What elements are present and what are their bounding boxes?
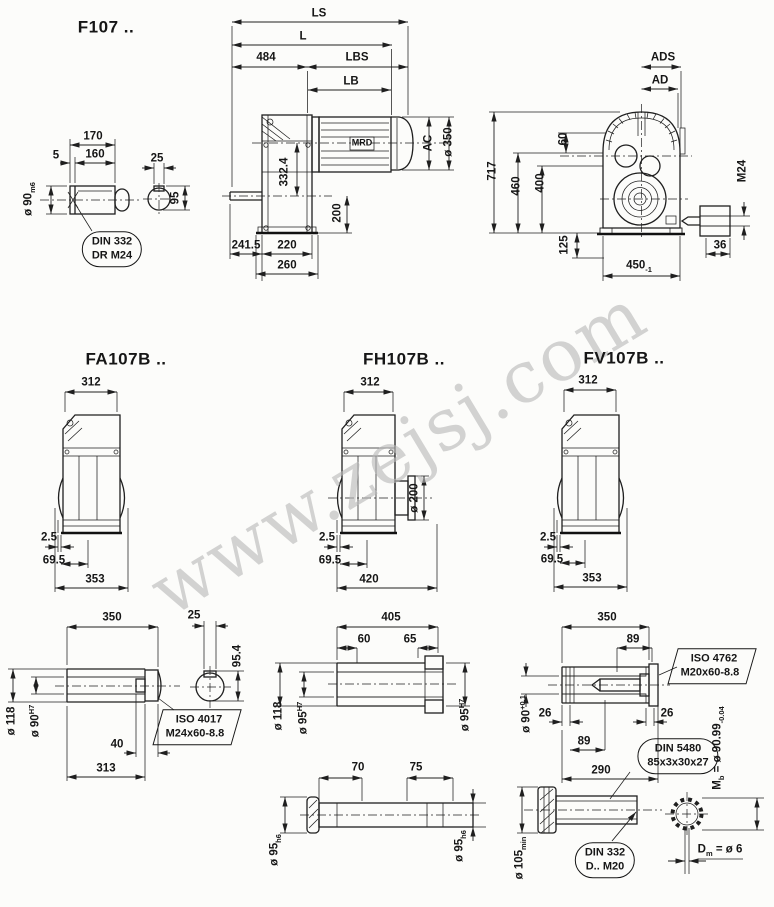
dim-260: 260 [277, 260, 296, 272]
dia90-tolerance: m6 [28, 182, 37, 193]
fh-dim-312: 312 [360, 377, 379, 389]
callout-din332-d-m20: DIN 332 D.. M20 [575, 842, 635, 878]
fv-shaft-dim-dia90: ø 90+0.1 [519, 695, 533, 733]
dim-m24: M24 [737, 160, 749, 182]
mb-prefix: M [712, 780, 724, 790]
fv-shaft-dim-dia105: ø 105min [515, 837, 528, 880]
fh-shaft-dim-dia118: ø 118 [273, 702, 285, 731]
fv-dia90-value: ø 90 [521, 710, 533, 733]
fv-dia105-value: ø 105 [514, 850, 526, 879]
d450-tolerance: -1 [645, 265, 652, 274]
fh-dia95bl-tolerance: h6 [274, 834, 283, 843]
dim-400: 400 [535, 173, 547, 192]
fa-dim-353: 353 [85, 574, 104, 586]
dim-lbs: LBS [346, 52, 369, 64]
fh-dia95bl-value: ø 95 [269, 843, 281, 866]
f107-front-view-drawing [489, 67, 750, 281]
fv-solid-shaft-drawing [517, 772, 764, 874]
fa-dia90-value: ø 90 [30, 714, 42, 737]
dim-ac: AC [423, 135, 435, 152]
dim-ls: LS [312, 8, 327, 20]
dim-95: 95 [170, 192, 182, 205]
dim-25: 25 [151, 153, 164, 165]
dim-160: 160 [85, 149, 104, 161]
dim-220: 220 [277, 240, 296, 252]
callout-line1: DIN 332 [92, 235, 132, 247]
fv-dia105-tolerance: min [519, 837, 528, 850]
d450-value: 450 [626, 260, 645, 272]
mb-value: = ø 90.99 [712, 723, 724, 775]
fh-shaft-dim-405: 405 [381, 612, 400, 624]
dim-60: 60 [558, 133, 570, 146]
fh-shaft-dim-dia95-bottom-left: ø 95h6 [270, 834, 283, 866]
fv-dim-353: 353 [582, 573, 601, 585]
fh-dim-2-5: 2.5 [319, 532, 335, 544]
fa-shaft-dim-95-4: 95.4 [232, 645, 244, 667]
dim-484: 484 [256, 52, 275, 64]
fh-shaft-dim-dia95-left: ø 95H7 [296, 702, 310, 735]
callout-iso4017: ISO 4017 M24x60-8.8 [153, 709, 242, 745]
fh-dia95r-value: ø 95 [460, 708, 472, 731]
callout-line2: 85x3x30x27 [647, 756, 708, 768]
dim-ad: AD [652, 75, 669, 87]
motor-brand-label: MRD [352, 139, 373, 148]
callout-line2: M20x60-8.8 [681, 666, 740, 680]
title-fh107b: FH107B .. [363, 351, 445, 368]
dm-value: = ø 6 [713, 844, 743, 856]
dim-l: L [299, 31, 306, 43]
callout-line2: M24x60-8.8 [166, 727, 225, 741]
dim-5: 5 [53, 150, 59, 162]
callout-line2: D.. M20 [586, 860, 625, 872]
fa-shaft-dim-40: 40 [111, 739, 124, 751]
callout-din332-dr-m24: DIN 332 DR M24 [82, 231, 142, 267]
dim-lb: LB [343, 76, 358, 88]
fv-shaft-dim-89-mid: 89 [578, 736, 591, 748]
fa-shaft-dim-dia90-h7: ø 90H7 [28, 705, 42, 738]
title-fa107b: FA107B .. [85, 351, 166, 368]
callout-line1: ISO 4762 [685, 652, 744, 666]
fa-dim-312: 312 [81, 377, 100, 389]
dia90-value: ø 90 [23, 193, 35, 216]
fh-dia95r-tolerance: H7 [457, 699, 466, 709]
dim-dia350: ø 350 [443, 127, 455, 156]
fv-shaft-dim-89-top: 89 [627, 634, 640, 646]
fh-shaft-dim-65: 65 [404, 634, 417, 646]
fv-dim-2-5: 2.5 [540, 532, 556, 544]
mb-tolerance: -0.04 [717, 706, 726, 723]
fa-shaft-dim-dia118: ø 118 [6, 707, 18, 736]
dim-450: 450-1 [626, 261, 652, 274]
dim-125: 125 [559, 235, 571, 254]
callout-line1: DIN 332 [585, 846, 625, 858]
fh-shaft-dim-60: 60 [358, 634, 371, 646]
dim-170: 170 [83, 131, 102, 143]
fa-dim-69-5: 69.5 [43, 555, 65, 567]
callout-line1: DIN 5480 [655, 742, 701, 754]
fa-shaft-dim-350: 350 [102, 612, 121, 624]
fh-shaft-dim-dia95-bottom-right: ø 95h6 [455, 830, 468, 862]
fv-shaft-dim-26-right: 26 [661, 708, 674, 720]
fa-dia90-tolerance: H7 [27, 705, 36, 715]
title-f107: F107 .. [78, 19, 134, 36]
fh-dia95l-tolerance: H7 [295, 702, 304, 712]
fv-dim-312: 312 [578, 375, 597, 387]
fh-dim-69-5: 69.5 [319, 555, 341, 567]
fv-dia90-tolerance: +0.1 [518, 695, 527, 710]
dim-dia90-m6: ø 90m6 [24, 182, 37, 216]
engineering-drawing-page: www.zejsj.com F107 .. FA107B .. FH107B .… [0, 0, 774, 907]
fv-shaft-dim-26-left: 26 [539, 708, 552, 720]
fv-dim-69-5: 69.5 [541, 554, 563, 566]
fv-shaft-dim-dm: Dm = ø 6 [698, 845, 743, 858]
fh-dia95br-value: ø 95 [454, 839, 466, 862]
fh-dim-420: 420 [359, 574, 378, 586]
dim-36: 36 [714, 240, 727, 252]
fa-hollow-shaft-drawing [8, 621, 244, 781]
dim-ads: ADS [651, 52, 675, 64]
dim-241-5: 241.5 [232, 240, 261, 252]
dim-460: 460 [511, 176, 523, 195]
dm-subscript: m [706, 849, 713, 858]
mb-subscript: b [717, 776, 726, 781]
callout-din5480: DIN 5480 85x3x30x27 [637, 738, 718, 774]
callout-line2: DR M24 [92, 249, 132, 261]
fh-shaft-dim-75: 75 [410, 762, 423, 774]
fh-hollow-shaft-drawing [275, 627, 470, 713]
fh-shaft-dim-70: 70 [352, 762, 365, 774]
fa-dim-2-5: 2.5 [41, 532, 57, 544]
f107-input-shaft-drawing [40, 139, 190, 231]
fv-shaft-dim-mb: Mb = ø 90.99-0.04 [713, 706, 726, 789]
fh-dia95br-tolerance: h6 [459, 830, 468, 839]
fh-dia95l-value: ø 95 [298, 711, 310, 734]
dim-717: 717 [487, 161, 499, 180]
title-fv107b: FV107B .. [583, 350, 664, 367]
fh-shaft-dim-dia95-right: ø 95H7 [458, 699, 472, 732]
callout-line1: ISO 4017 [170, 713, 229, 727]
fa-shaft-dim-313: 313 [96, 763, 115, 775]
fa-shaft-dim-25: 25 [188, 610, 201, 622]
fv-shaft-dim-350: 350 [597, 612, 616, 624]
dim-200: 200 [332, 203, 344, 222]
fv-shaft-dim-290: 290 [591, 765, 610, 777]
callout-iso4762: ISO 4762 M20x60-8.8 [668, 648, 757, 684]
fh-dim-dia200: ø 200 [409, 483, 421, 512]
dim-332-4: 332.4 [279, 158, 291, 187]
